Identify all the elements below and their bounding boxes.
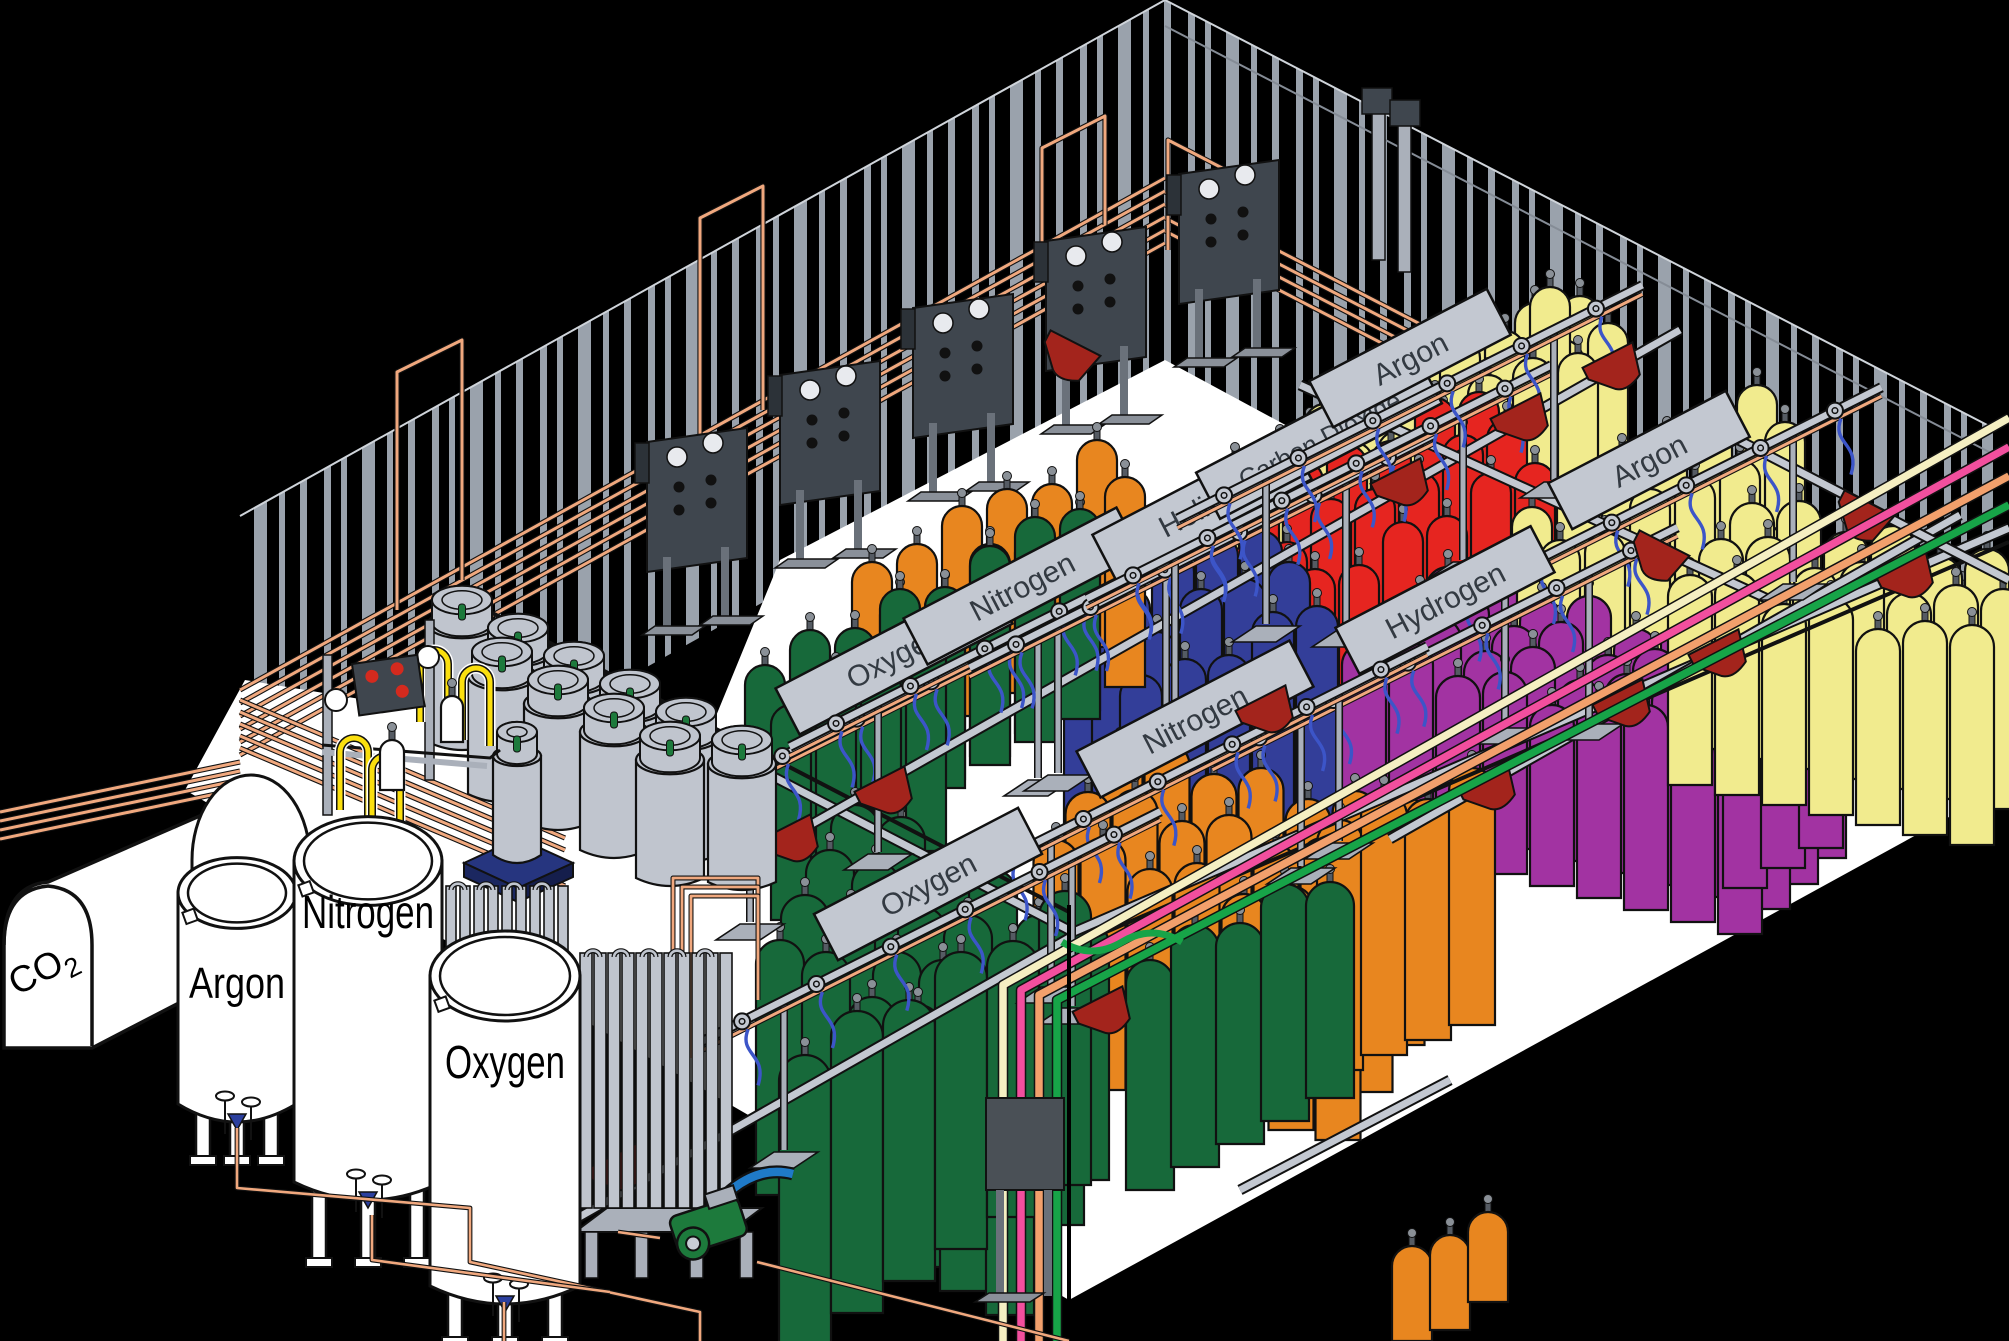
svg-text:Nitrogen: Nitrogen (302, 886, 434, 938)
svg-text:Oxygen: Oxygen (445, 1036, 565, 1088)
svg-text:Argon: Argon (189, 959, 285, 1008)
